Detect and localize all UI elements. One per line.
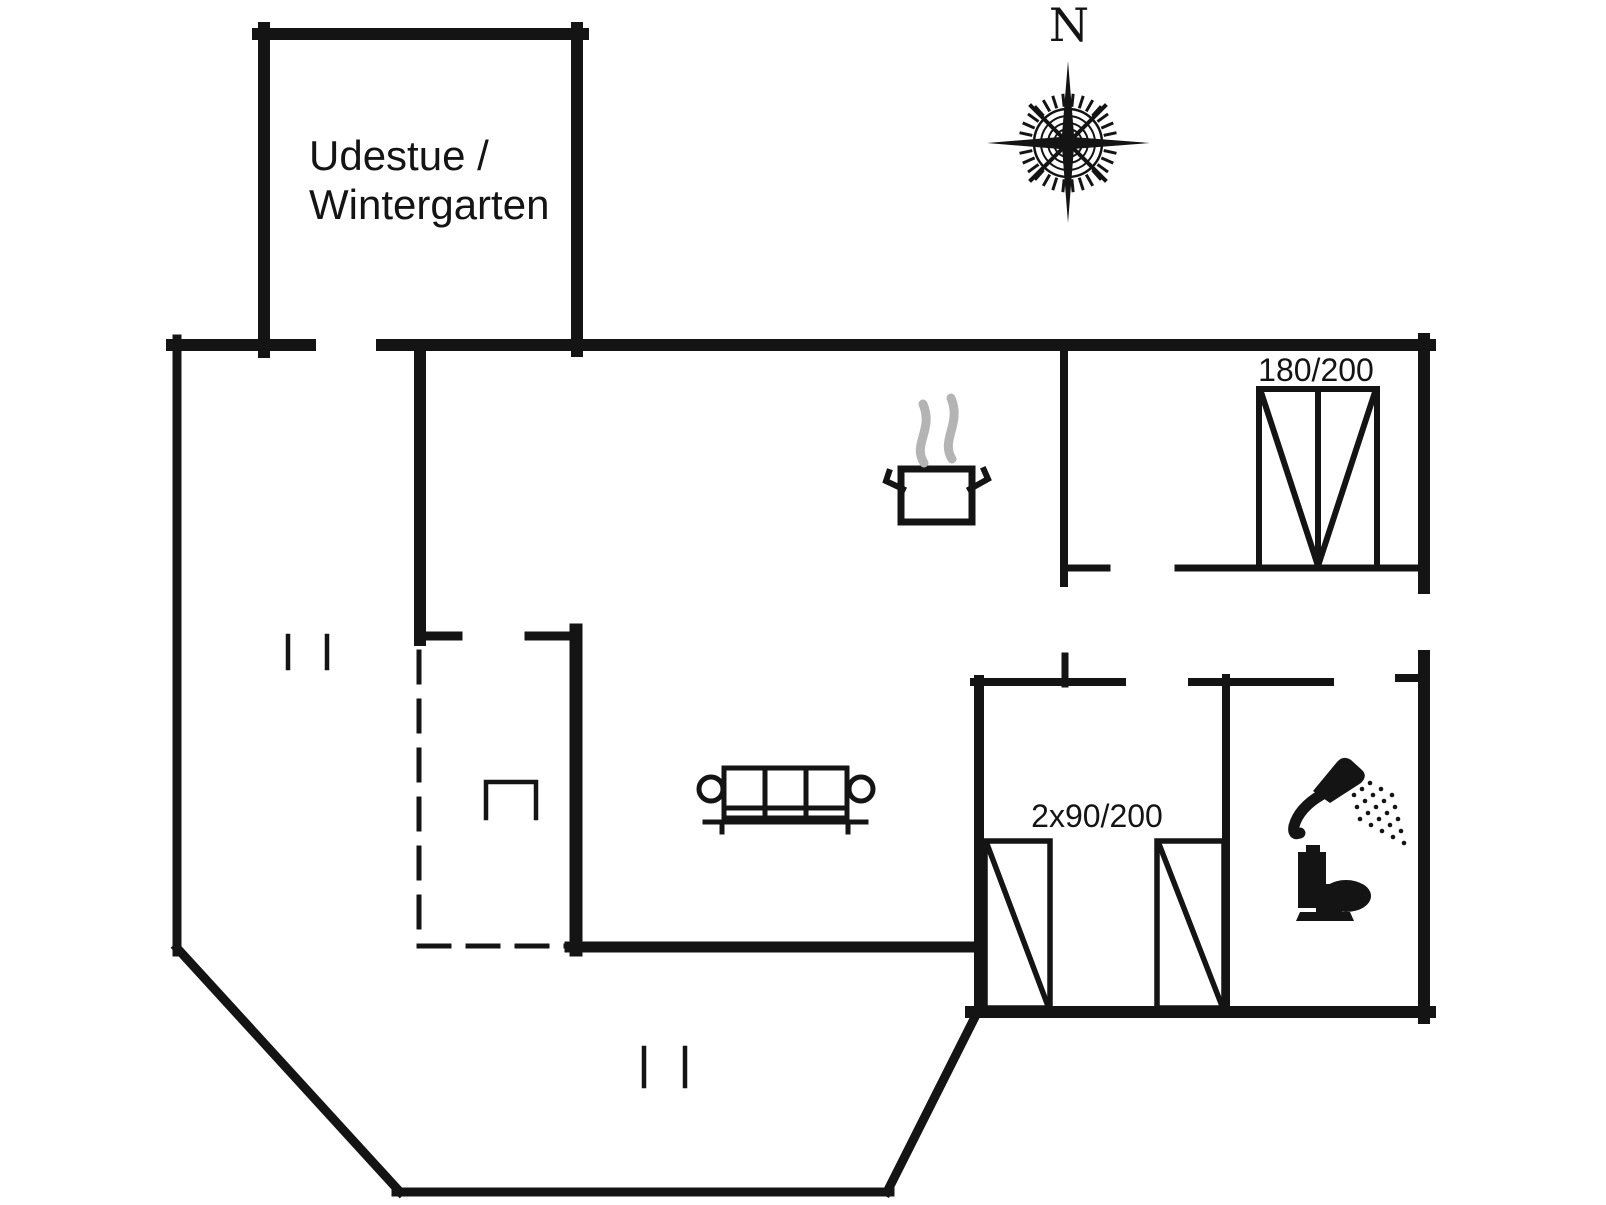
text-labels: Udestue / Wintergarten N 180/200 2x90/20… bbox=[309, 0, 1374, 834]
steam-icon bbox=[920, 398, 954, 463]
opening-tick-marks bbox=[288, 636, 685, 1086]
sunroom-label-line1: Udestue / bbox=[309, 132, 489, 179]
compass-north-label: N bbox=[1049, 0, 1089, 52]
floor-plan-canvas: Udestue / Wintergarten N 180/200 2x90/20… bbox=[0, 0, 1606, 1205]
cooking-pot-icon bbox=[886, 469, 988, 522]
double-bed-icon bbox=[1259, 389, 1377, 568]
dashed-partition bbox=[419, 652, 568, 946]
sunroom-label-line2: Wintergarten bbox=[309, 181, 549, 228]
chair-icon bbox=[486, 782, 536, 818]
two-single-beds-icon bbox=[985, 841, 1224, 1008]
toilet-icon bbox=[1296, 845, 1371, 921]
sofa-icon bbox=[699, 768, 873, 832]
shower-head-icon bbox=[1313, 758, 1365, 803]
double-bed-size-label: 180/200 bbox=[1258, 352, 1374, 388]
floor-plan-drawing: Udestue / Wintergarten N 180/200 2x90/20… bbox=[0, 0, 1606, 1205]
compass-we-arm bbox=[987, 137, 1150, 150]
single-beds-size-label: 2x90/200 bbox=[1031, 798, 1163, 834]
shower-handle bbox=[1294, 795, 1321, 834]
